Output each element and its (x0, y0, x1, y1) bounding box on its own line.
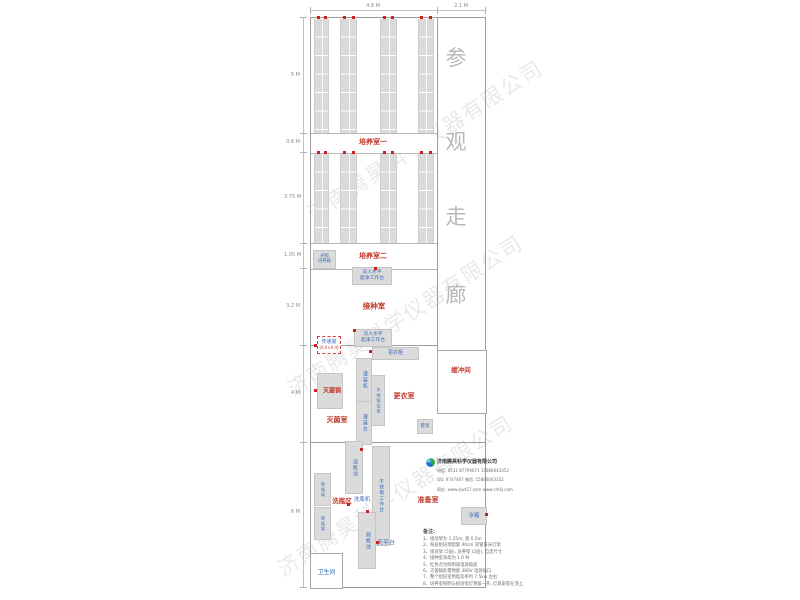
dim-tick (300, 268, 307, 269)
dim-tick (300, 152, 307, 153)
notes-block: 备注: 1、组培架为 1.25m, 宽 0.5m 2、每层组培架配套 40cm … (423, 528, 524, 588)
power-dot (369, 350, 372, 353)
room-label-changing: 更衣室 (394, 391, 415, 401)
room-label-buffer: 缓冲间 (451, 364, 471, 374)
company-phone: 电话: 0531-87799671 15866643352 (437, 468, 513, 474)
power-dot (314, 344, 317, 347)
wall-corridor (437, 17, 438, 350)
dim-left-2: 0.6 M (284, 139, 300, 145)
company-logo-icon (426, 458, 435, 467)
dim-tick (300, 133, 307, 134)
power-dot (314, 389, 317, 392)
wall-left (310, 17, 311, 587)
power-dot (383, 16, 386, 19)
room-label-inoculation: 接种室 (363, 301, 386, 312)
power-dot (352, 16, 355, 19)
power-dot (324, 151, 327, 154)
power-dot (391, 151, 394, 154)
dim-tick (485, 7, 486, 14)
balance-table-label: 天平台 (377, 538, 395, 547)
bottle-washer-label: 洗瓶机 (354, 495, 371, 503)
dim-tick (300, 442, 307, 443)
ss-shelf-box: 不锈钢货架 (371, 375, 385, 426)
power-dot (343, 151, 346, 154)
company-qq: QQ: 9747467 微信: 15866643352 (437, 477, 513, 483)
room-label-culture2: 培养室二 (359, 251, 387, 261)
dim-tick (300, 243, 307, 244)
toilet-box: 卫生间 (310, 553, 343, 589)
dim-left-4: 1.05 M (284, 252, 300, 258)
buffer-room-box (437, 350, 487, 414)
dim-left-7: 6 M (284, 509, 300, 515)
rinse-pool-box: 涮瓶池 (358, 512, 376, 569)
filling-machine-box: 灌装机 (356, 358, 372, 402)
drying-rack-2-box: 晾瓶架 (314, 507, 331, 540)
power-dot (324, 16, 327, 19)
wall-prep-north (310, 442, 486, 443)
corridor-char-2: 观 (446, 126, 467, 156)
power-dot (429, 16, 432, 19)
dim-tick (310, 7, 311, 14)
dim-tick (300, 345, 307, 346)
clean-bench-1-box: 双人水平 超净工作台 (352, 267, 392, 285)
wall-top (310, 17, 486, 18)
dim-tick (300, 587, 307, 588)
light-incubator-box: 光照 培养箱 (313, 250, 336, 269)
shoe-rack-box: 鞋架 (417, 419, 433, 434)
dim-left-3: 3.75 M (284, 194, 300, 200)
power-dot (391, 16, 394, 19)
note-item: 8、培养室照明与组培架灯预留一齐, 灯具安装在顶上. (423, 582, 524, 588)
culture-rack (340, 154, 357, 243)
corridor-char-1: 参 (446, 42, 467, 72)
dim-left-1: 5 M (284, 72, 300, 78)
power-dot (366, 510, 369, 513)
dim-left-5: 3.2 M (284, 303, 300, 309)
filling-table-box: 灌装台 (356, 401, 372, 445)
room-label-preparation: 准备室 (418, 495, 439, 505)
left-dimension-line (303, 17, 304, 587)
power-dot (429, 151, 432, 154)
culture-rack (418, 154, 434, 243)
fridge-box: 冰箱 (461, 507, 487, 525)
floor-plan-canvas: 济南腾昊科学仪器有限公司 济南腾昊科学仪器有限公司 济南腾昊科学仪器有限公司 4… (0, 0, 800, 600)
dim-tick (300, 17, 307, 18)
company-block: 济南腾昊科学仪器有限公司 电话: 0531-87799671 158666433… (437, 458, 513, 493)
corridor-char-4: 廊 (446, 279, 467, 309)
power-dot (317, 16, 320, 19)
culture-rack (314, 154, 329, 243)
pass-window-box: 传递窗 (0.4×0.4) (317, 336, 341, 354)
room-label-culture1: 培养室一 (359, 137, 387, 147)
power-dot (360, 448, 363, 451)
clean-bench-2-box: 双人水平 超净工作台 (354, 329, 392, 347)
sterilizer-label: 灭菌锅 (323, 386, 341, 395)
power-dot (353, 329, 356, 332)
company-web: 网址: www.sjwt27.com www.crhkj.com (437, 487, 513, 493)
dim-left-6: 4 M (284, 390, 300, 396)
dim-tick (437, 7, 438, 14)
dim-width-main: 4.8 M (366, 3, 380, 9)
culture-rack (380, 19, 397, 133)
power-dot (485, 513, 488, 516)
culture-rack (380, 154, 397, 243)
notes-title: 备注: (423, 528, 524, 535)
power-dot (343, 16, 346, 19)
top-dimension-line (310, 10, 486, 11)
pass-window-size: (0.4×0.4) (319, 346, 338, 351)
company-name: 济南腾昊科学仪器有限公司 (437, 458, 513, 465)
culture-rack (340, 19, 357, 133)
power-dot (352, 151, 355, 154)
power-dot (420, 16, 423, 19)
power-dot (374, 267, 377, 270)
power-dot (383, 151, 386, 154)
culture-rack (418, 19, 434, 133)
wardrobe-box: 更衣柜 (372, 347, 419, 360)
power-dot (347, 503, 350, 506)
corridor-char-3: 走 (446, 201, 467, 231)
drying-rack-1-box: 晾瓶架 (314, 473, 331, 506)
power-dot (376, 541, 379, 544)
room-label-sterilization: 灭菌室 (327, 415, 348, 425)
wall-right (485, 17, 486, 587)
power-dot (317, 151, 320, 154)
dim-width-corridor: 2.1 M (454, 3, 468, 9)
power-dot (420, 151, 423, 154)
culture-rack (314, 19, 329, 133)
